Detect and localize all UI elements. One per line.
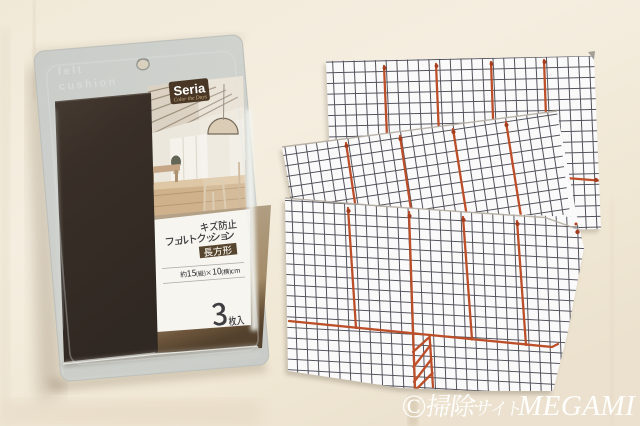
svg-text:felt: felt	[57, 64, 84, 78]
svg-text:MEGAMI: MEGAMI	[517, 390, 636, 422]
svg-text:©: ©	[401, 389, 426, 425]
